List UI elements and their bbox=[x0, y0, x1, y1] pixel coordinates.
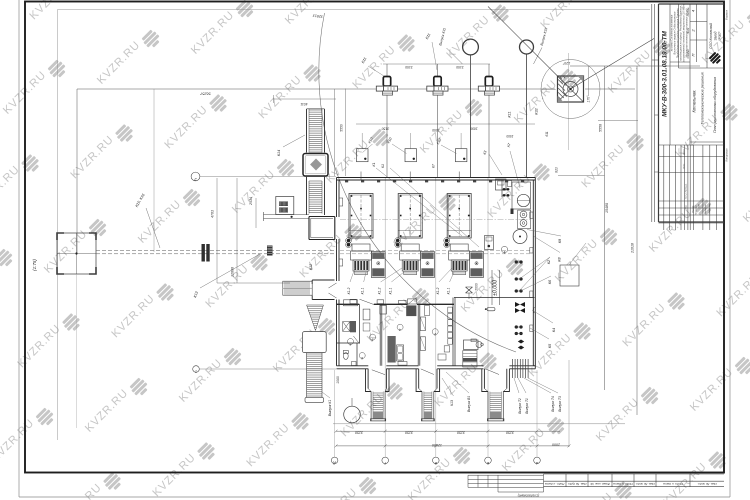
svg-text:К4: К4 bbox=[552, 328, 556, 332]
svg-text:2000: 2000 bbox=[475, 283, 479, 292]
svg-text:±0,000: ±0,000 bbox=[493, 280, 499, 296]
svg-text:Разраб.: Разраб. bbox=[693, 205, 695, 213]
svg-text:Выпуск К1: Выпуск К1 bbox=[328, 400, 332, 417]
svg-text:3150: 3150 bbox=[405, 65, 413, 69]
svg-text:4763: 4763 bbox=[211, 210, 215, 218]
svg-text:2534: 2534 bbox=[249, 197, 253, 206]
svg-text:К1.1: К1.1 bbox=[388, 288, 392, 295]
svg-text:Стадия: Стадия bbox=[687, 49, 690, 59]
svg-text:К1: К1 bbox=[372, 162, 376, 166]
svg-text:ООО Котельный: ООО Котельный bbox=[709, 23, 713, 49]
svg-text:Подп. и дата: Подп. и дата bbox=[613, 482, 633, 486]
svg-text:ГИП: ГИП bbox=[699, 203, 701, 208]
svg-text:"РЭП": "РЭП" bbox=[718, 31, 722, 41]
svg-text:К32: К32 bbox=[535, 107, 539, 114]
svg-text:Инв. № подл.: Инв. № подл. bbox=[635, 482, 654, 486]
svg-text:3150: 3150 bbox=[355, 430, 363, 434]
svg-text:Выпуск Т4: Выпуск Т4 bbox=[551, 396, 555, 412]
svg-text:5: 5 bbox=[349, 342, 351, 346]
svg-text:Подп.: Подп. bbox=[683, 163, 686, 169]
svg-text:4011: 4011 bbox=[300, 102, 307, 106]
svg-text:К1.2: К1.2 bbox=[347, 288, 351, 295]
svg-text:Выпуск Т3: Выпуск Т3 bbox=[558, 396, 562, 412]
svg-text:1690: 1690 bbox=[470, 127, 478, 131]
svg-text:5550: 5550 bbox=[599, 124, 603, 132]
svg-text:К1.1: К1.1 bbox=[447, 288, 451, 295]
svg-text:(1:75): (1:75) bbox=[32, 259, 37, 271]
svg-text:Выпуск Т1: Выпуск Т1 bbox=[525, 398, 529, 414]
svg-text:Кабардин: Кабардин bbox=[708, 203, 711, 213]
svg-text:6: 6 bbox=[361, 356, 363, 360]
svg-text:выселки Соседнего поселения: выселки Соседнего поселения bbox=[669, 14, 673, 51]
svg-text:823: 823 bbox=[555, 167, 559, 173]
svg-text:1500: 1500 bbox=[506, 134, 513, 138]
svg-text:(Согласовано): (Согласовано) bbox=[518, 494, 540, 498]
svg-text:К13: К13 bbox=[450, 400, 454, 406]
svg-text:56257: 56257 bbox=[199, 92, 210, 96]
svg-text:П: П bbox=[691, 53, 696, 56]
svg-text:2: 2 bbox=[434, 332, 437, 336]
svg-text:5550: 5550 bbox=[340, 124, 344, 132]
svg-text:Инв. № подл.: Инв. № подл. bbox=[697, 482, 716, 486]
svg-text:Тепломеханические решения.: Тепломеханические решения. bbox=[701, 71, 705, 124]
svg-text:МКУ-В-300-3.01.08.19.00-ТМ: МКУ-В-300-3.01.08.19.00-ТМ bbox=[662, 30, 669, 116]
svg-text:2000: 2000 bbox=[552, 443, 561, 447]
svg-text:Листов: Листов bbox=[687, 7, 690, 17]
svg-text:12000: 12000 bbox=[231, 267, 235, 277]
svg-text:Кабардин: Кабардин bbox=[704, 203, 707, 213]
svg-text:3: 3 bbox=[371, 337, 373, 341]
svg-text:3150: 3150 bbox=[457, 430, 465, 434]
svg-text:К12: К12 bbox=[309, 263, 313, 270]
svg-text:Завод: Завод bbox=[714, 31, 718, 40]
svg-text:Проверил: Проверил bbox=[696, 204, 698, 214]
svg-text:611: 611 bbox=[545, 131, 549, 136]
svg-text:К1.2: К1.2 bbox=[436, 288, 440, 295]
svg-text:Кол.уч №докум.: Кол.уч №докум. bbox=[685, 183, 688, 199]
svg-text:4: 4 bbox=[399, 328, 401, 332]
svg-text:Дата: Дата bbox=[684, 148, 686, 155]
svg-text:120°: 120° bbox=[562, 61, 570, 65]
svg-text:3150: 3150 bbox=[456, 65, 464, 69]
svg-text:Подп. и дата: Подп. и дата bbox=[545, 482, 565, 486]
svg-text:План расстановки оборудования: План расстановки оборудования bbox=[713, 77, 717, 133]
svg-text:Выпуск В1: Выпуск В1 bbox=[467, 396, 471, 412]
svg-text:Лист: Лист bbox=[687, 28, 690, 35]
svg-text:1: 1 bbox=[503, 250, 505, 254]
svg-text:Изм.: Изм. bbox=[686, 204, 688, 209]
svg-text:21618: 21618 bbox=[631, 243, 635, 254]
svg-text:К11: К11 bbox=[508, 111, 512, 117]
svg-text:К1.2: К1.2 bbox=[378, 288, 382, 295]
svg-text:Выпуск Т2: Выпуск Т2 bbox=[518, 398, 522, 414]
svg-text:К14: К14 bbox=[277, 150, 281, 156]
svg-text:Формат: Формат bbox=[725, 9, 729, 20]
svg-text:К1: К1 bbox=[381, 164, 385, 168]
svg-text:Взам. инв. №: Взам. инв. № bbox=[590, 482, 610, 486]
svg-text:3150: 3150 bbox=[382, 127, 390, 131]
svg-text:Подп. и дата: Подп. и дата bbox=[663, 482, 683, 486]
svg-text:К1.1: К1.1 bbox=[361, 288, 365, 295]
svg-text:15480: 15480 bbox=[605, 203, 609, 213]
svg-text:Инв. № дубл.: Инв. № дубл. bbox=[567, 482, 586, 486]
svg-text:3150: 3150 bbox=[506, 430, 514, 434]
svg-text:1: 1 bbox=[195, 370, 197, 374]
svg-text:1060: 1060 bbox=[336, 376, 340, 384]
svg-text:3150: 3150 bbox=[432, 128, 440, 132]
svg-text:3150: 3150 bbox=[405, 430, 413, 434]
svg-text:Котельная.: Котельная. bbox=[692, 89, 697, 112]
svg-text:Копировал: Копировал bbox=[725, 148, 729, 161]
